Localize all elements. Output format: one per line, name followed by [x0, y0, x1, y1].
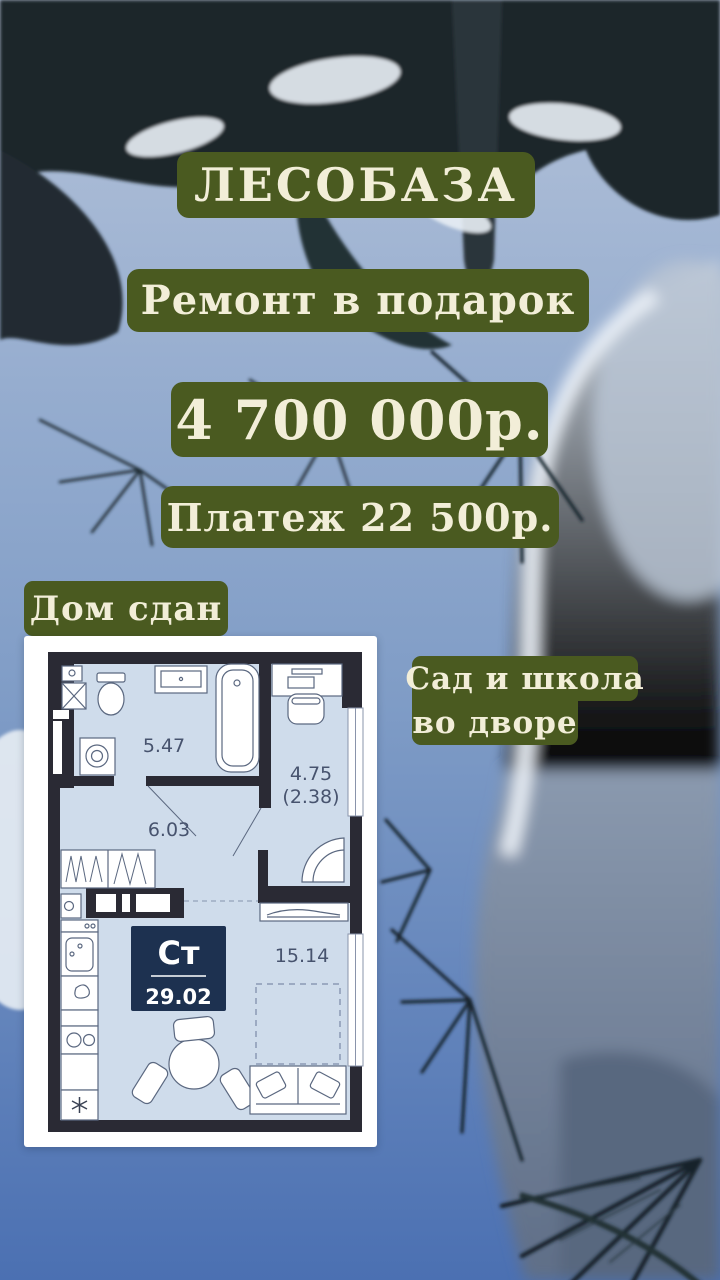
floorplan-card: Ст 29.02 5.47 6.03 4.75 (2.38) 15.14 — [24, 636, 377, 1147]
floorplan-diagram: Ст 29.02 5.47 6.03 4.75 (2.38) 15.14 — [24, 636, 377, 1147]
wardrobe — [61, 850, 155, 888]
living-room-area-label: 15.14 — [275, 945, 329, 967]
sofa — [250, 1066, 346, 1114]
project-title: ЛЕСОБАЗА — [177, 152, 535, 218]
kitchen-counter — [61, 920, 98, 1120]
boiler-box — [61, 894, 81, 918]
loggia-area-label: 4.75 — [290, 763, 332, 785]
status-line: Дом сдан — [24, 581, 228, 636]
washing-machine — [80, 738, 115, 775]
price-line: 4 700 000р. — [171, 382, 548, 457]
amenities-line-1: Сад и школа — [412, 656, 638, 701]
total-area-badge: Ст 29.02 — [131, 926, 226, 1011]
bathtub — [216, 664, 259, 772]
total-area-value: 29.02 — [145, 985, 211, 1009]
promo-story: ЛЕСОБАЗА Ремонт в подарок 4 700 000р. Пл… — [0, 0, 720, 1280]
bathroom-sink — [155, 666, 207, 693]
toilet — [97, 673, 125, 715]
unit-type-label: Ст — [157, 934, 199, 972]
hallway-area-label: 6.03 — [148, 819, 190, 841]
payment-line: Платеж 22 500р. — [161, 486, 559, 548]
desk — [272, 664, 342, 696]
vent-shaft — [62, 666, 86, 709]
offer-line: Ремонт в подарок — [127, 269, 589, 332]
bathroom-area-label: 5.47 — [143, 735, 185, 757]
loggia-reduced-label: (2.38) — [282, 786, 339, 808]
window-sill-radiator — [260, 903, 348, 921]
desk-chair — [288, 694, 324, 724]
amenities-line-2: во дворе — [412, 700, 578, 745]
